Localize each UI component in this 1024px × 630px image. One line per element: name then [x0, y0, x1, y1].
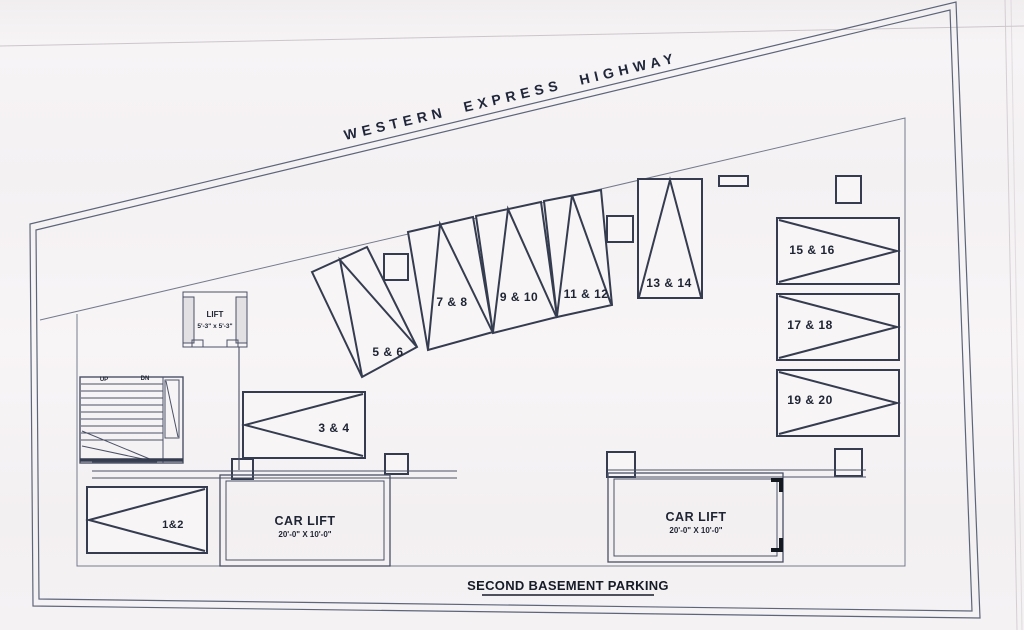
stall-label: 9 & 10	[500, 290, 538, 304]
stair-treads	[81, 384, 163, 440]
stall-1-2: 1&2	[87, 487, 207, 553]
stall-15-16: 15 & 16	[777, 218, 899, 284]
lift-size-label: 5'-3" x 5'-3"	[197, 323, 232, 330]
stair-down-label: DN	[141, 376, 150, 382]
stall-label: 13 & 14	[646, 276, 692, 290]
staircase: UP DN	[80, 376, 183, 463]
car-lift-left: CAR LIFT 20'-0" X 10'-0"	[220, 475, 390, 566]
car-lift-size-label: 20'-0" X 10'-0"	[669, 526, 722, 535]
lift-label: LIFT	[207, 310, 224, 319]
stall-13-14: 13 & 14	[638, 179, 702, 298]
scan-artifact-edge2	[1011, 0, 1022, 630]
scan-artifact-edge	[1005, 0, 1017, 630]
stall-label: 1&2	[162, 519, 184, 531]
stall-label: 19 & 20	[787, 393, 833, 407]
stall-label: 15 & 16	[789, 243, 835, 257]
stall-label: 3 & 4	[318, 421, 349, 435]
stall-19-20: 19 & 20	[777, 370, 899, 436]
lift-pilaster-left	[183, 297, 194, 343]
drawing-title: SECOND BASEMENT PARKING	[467, 578, 669, 595]
stall-label: 7 & 8	[436, 295, 467, 309]
column	[607, 216, 633, 242]
column	[836, 176, 861, 203]
column-bar	[719, 176, 748, 186]
car-lift-size-label: 20'-0" X 10'-0"	[278, 530, 331, 539]
lift-pilaster-right	[236, 297, 247, 343]
drawing-title-text: SECOND BASEMENT PARKING	[467, 578, 669, 593]
stair-up-label: UP	[100, 377, 108, 383]
column	[232, 459, 253, 479]
stall-outline	[87, 487, 207, 553]
stall-3-4: 3 & 4	[243, 392, 365, 458]
lift: LIFT 5'-3" x 5'-3"	[183, 292, 247, 347]
stall-label: 11 & 12	[564, 287, 609, 301]
floor-plan-page: WESTERN EXPRESS HIGHWAY 1&2 3 & 4 5 & 6 …	[0, 0, 1024, 630]
floor-plan-drawing: WESTERN EXPRESS HIGHWAY 1&2 3 & 4 5 & 6 …	[0, 0, 1024, 630]
stall-11-12: 11 & 12	[544, 190, 612, 317]
highway-label: WESTERN EXPRESS HIGHWAY	[342, 49, 679, 143]
car-lift-right: CAR LIFT 20'-0" X 10'-0"	[608, 473, 783, 562]
stair-winders	[82, 431, 157, 462]
stair-shaft-diagonal	[166, 381, 178, 437]
stall-17-18: 17 & 18	[777, 294, 899, 360]
column	[384, 254, 408, 280]
stall-label: 17 & 18	[787, 318, 833, 332]
car-lift-label: CAR LIFT	[275, 514, 336, 528]
column	[835, 449, 862, 476]
walls	[92, 347, 866, 478]
car-lift-label: CAR LIFT	[666, 510, 727, 524]
stall-label: 5 & 6	[372, 345, 403, 359]
